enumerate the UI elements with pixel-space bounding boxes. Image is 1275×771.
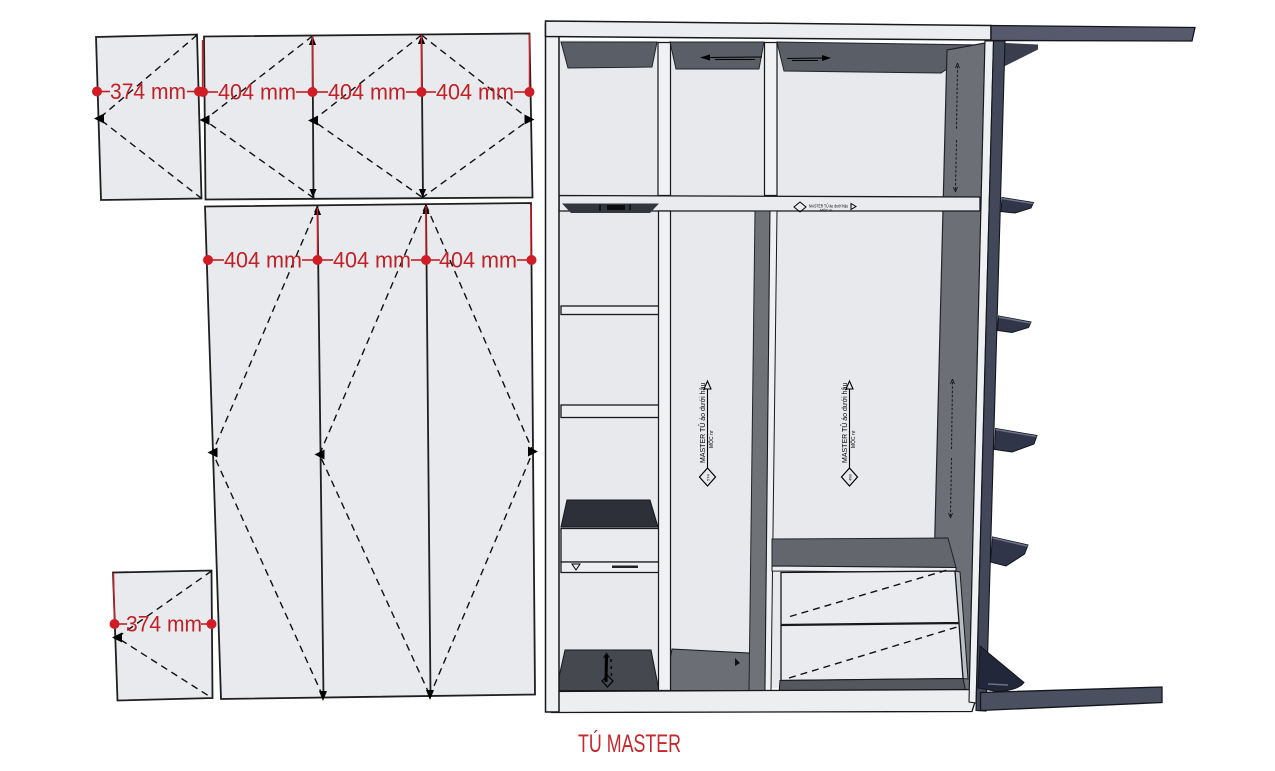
svg-text:404 mm: 404 mm [328, 80, 406, 105]
svg-text:404 mm: 404 mm [439, 248, 517, 273]
svg-text:404 mm: 404 mm [224, 248, 302, 273]
svg-text:MỘC nr: MỘC nr [850, 430, 857, 448]
svg-text:404 mm: 404 mm [436, 80, 514, 105]
svg-text:MỘC nr: MỘC nr [708, 430, 715, 448]
svg-text:374 mm: 374 mm [126, 612, 202, 637]
svg-text:404 mm: 404 mm [218, 80, 296, 105]
svg-text:MASTER TỦ áo dưới hậu: MASTER TỦ áo dưới hậu [840, 383, 849, 463]
svg-text:MỘC nr: MỘC nr [820, 208, 833, 213]
svg-text:574: 574 [706, 474, 711, 481]
svg-text:MASTER TỦ áo dưới hậu: MASTER TỦ áo dưới hậu [698, 383, 707, 463]
svg-text:404 mm: 404 mm [333, 248, 411, 273]
svg-text:TÚ MASTER: TÚ MASTER [578, 729, 681, 758]
svg-text:498: 498 [848, 474, 853, 481]
svg-text:374 mm: 374 mm [110, 79, 186, 104]
